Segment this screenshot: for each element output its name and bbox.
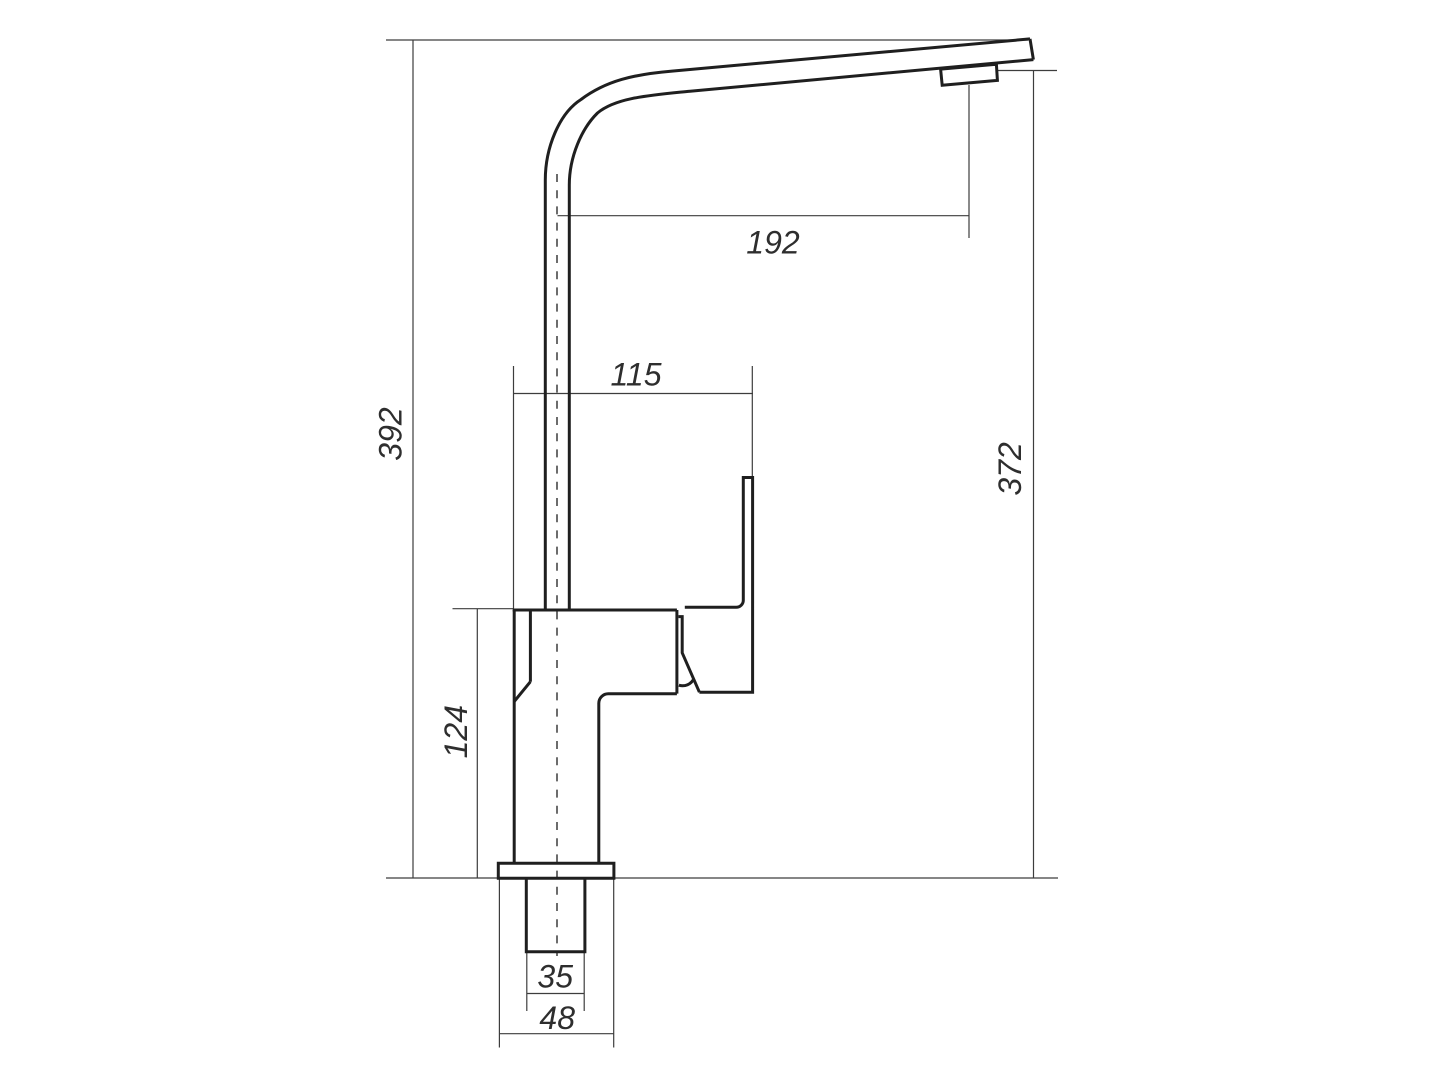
svg-text:192: 192 [746, 225, 800, 261]
svg-text:48: 48 [539, 1000, 575, 1036]
svg-text:124: 124 [438, 705, 474, 758]
svg-text:372: 372 [992, 442, 1028, 496]
svg-text:392: 392 [373, 407, 409, 461]
svg-text:35: 35 [537, 959, 573, 995]
svg-text:115: 115 [610, 357, 661, 393]
